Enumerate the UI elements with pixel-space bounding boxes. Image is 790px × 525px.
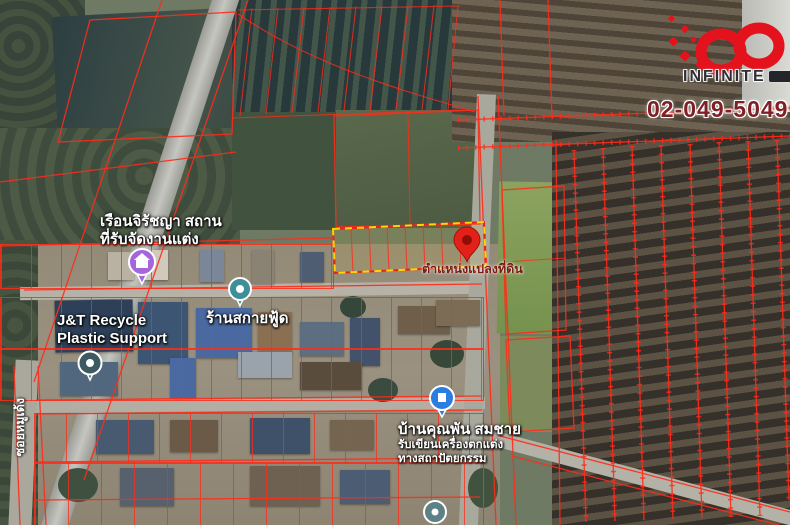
house-label-line2: รับเขียนเครื่องตกแต่ง [398,439,548,453]
brand-name-text: INFINITE [683,68,766,85]
house-label-line3: ทางสถาปัตยกรรม [398,453,548,467]
venue-label: เรือนจิรัชญา สถาน ที่รับจัดงานแต่ง [100,213,280,249]
venue-label-line1: เรือนจิรัชญา สถาน [100,213,280,231]
pond-outline [58,12,236,142]
bottom-pin[interactable] [424,501,446,523]
skyfood-label: ร้านสกายฟู้ด [206,310,289,328]
venue-label-line2: ที่รับจัดงานแต่ง [100,231,280,249]
house-pin[interactable] [430,386,454,417]
jt-label-line2: Plastic Support [57,330,197,348]
jt-recycle-label: J&T Recycle Plastic Support [57,312,197,348]
house-label-line1: บ้านคุณพัน สมชาย [398,421,548,439]
brand-name: INFINITE [683,68,790,86]
center-parcel-divider [408,113,410,225]
jt-recycle-pin[interactable] [79,352,102,381]
center-parcel-outline [334,110,480,227]
brand-block: INFINITE 02-049-5049 [645,4,790,134]
soi-road-label: ซอยหมูเด้ง [10,398,30,456]
nursery-lines [232,5,464,118]
map-canvas[interactable]: เรือนจิรัชญา สถาน ที่รับจัดงานแต่ง J&T R… [0,0,790,525]
venue-pin[interactable] [129,249,155,284]
jt-label-line1: J&T Recycle [57,312,197,330]
phone-number: 02-049-5049 [647,96,788,123]
brand-badge [769,71,790,82]
skyfood-pin[interactable] [229,278,251,306]
side-parcel-outline [506,336,574,432]
parcel-location-label: ตำแหน่งแปลงที่ดิน [422,259,523,279]
house-label: บ้านคุณพัน สมชาย รับเขียนเครื่องตกแต่ง ท… [398,421,548,467]
curve-boundary [238,14,475,112]
